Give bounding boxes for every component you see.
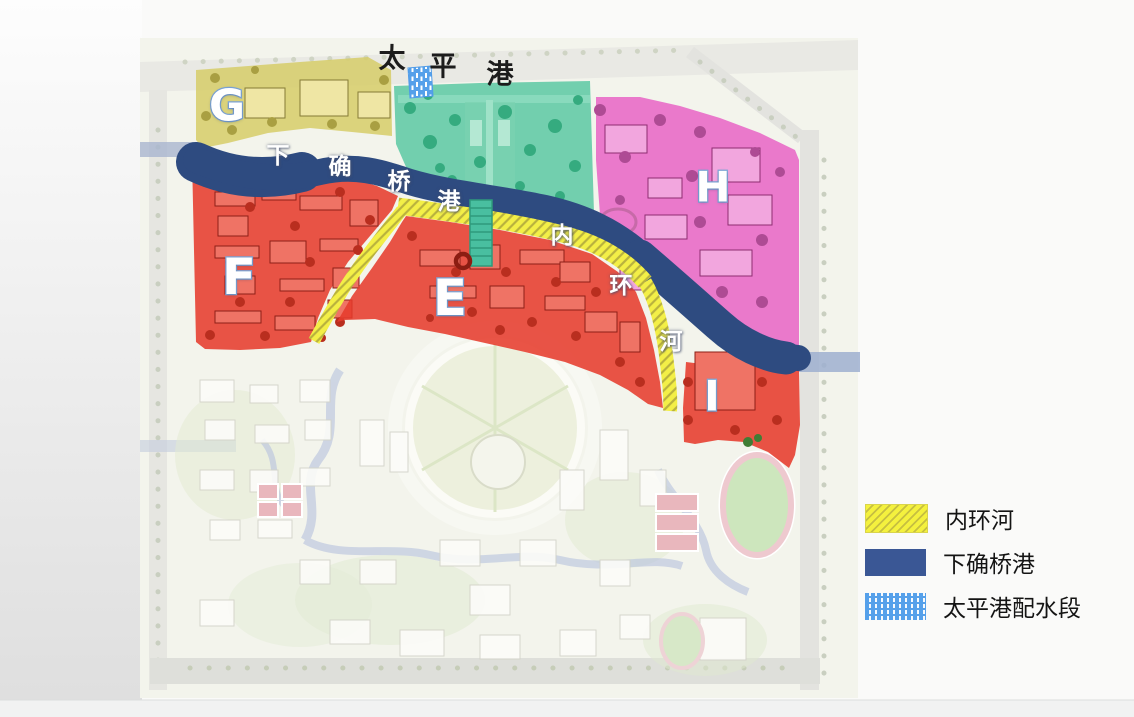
zone-label-e: E [433,269,467,327]
ring-char-huan: 环 [610,266,633,300]
left-margin [0,0,142,717]
legend-row-taiping-distribution: 太平港配水段 [865,592,1081,620]
zone-label-i: I [704,372,720,421]
taiping-gang-char-3: 港 [487,53,514,92]
zone-label-g: G [209,81,245,132]
taiping-gang-char-2: 平 [430,45,457,84]
legend-label-xiaqueqiao: 下确桥港 [943,545,1035,579]
ring-char-nei: 内 [551,216,574,250]
legend-label-inner-ring: 内环河 [945,501,1014,535]
plan-slide: 太 平 港 下 确 桥 港 内 环 河 G F E H I 内环河 下确桥港 太… [0,0,1134,717]
river-char-que: 确 [329,147,352,181]
bottom-strip [0,700,1134,717]
river-char-gang: 港 [438,182,461,216]
river-char-xia: 下 [267,136,290,170]
legend-swatch-taiping-distribution [865,593,926,620]
zone-label-f: F [222,248,256,306]
legend-swatch-inner-ring [865,504,928,533]
legend-row-inner-ring: 内环河 [865,504,1014,532]
river-char-qiao: 桥 [388,162,411,196]
park-axis-bridge [470,200,492,266]
ring-char-he: 河 [660,322,683,356]
legend-swatch-xiaqueqiao [865,549,926,576]
legend-row-xiaqueqiao: 下确桥港 [865,548,1035,576]
taiping-gang-char-1: 太 [379,37,406,76]
zone-label-h: H [695,163,730,212]
legend-label-taiping-distribution: 太平港配水段 [943,589,1081,623]
